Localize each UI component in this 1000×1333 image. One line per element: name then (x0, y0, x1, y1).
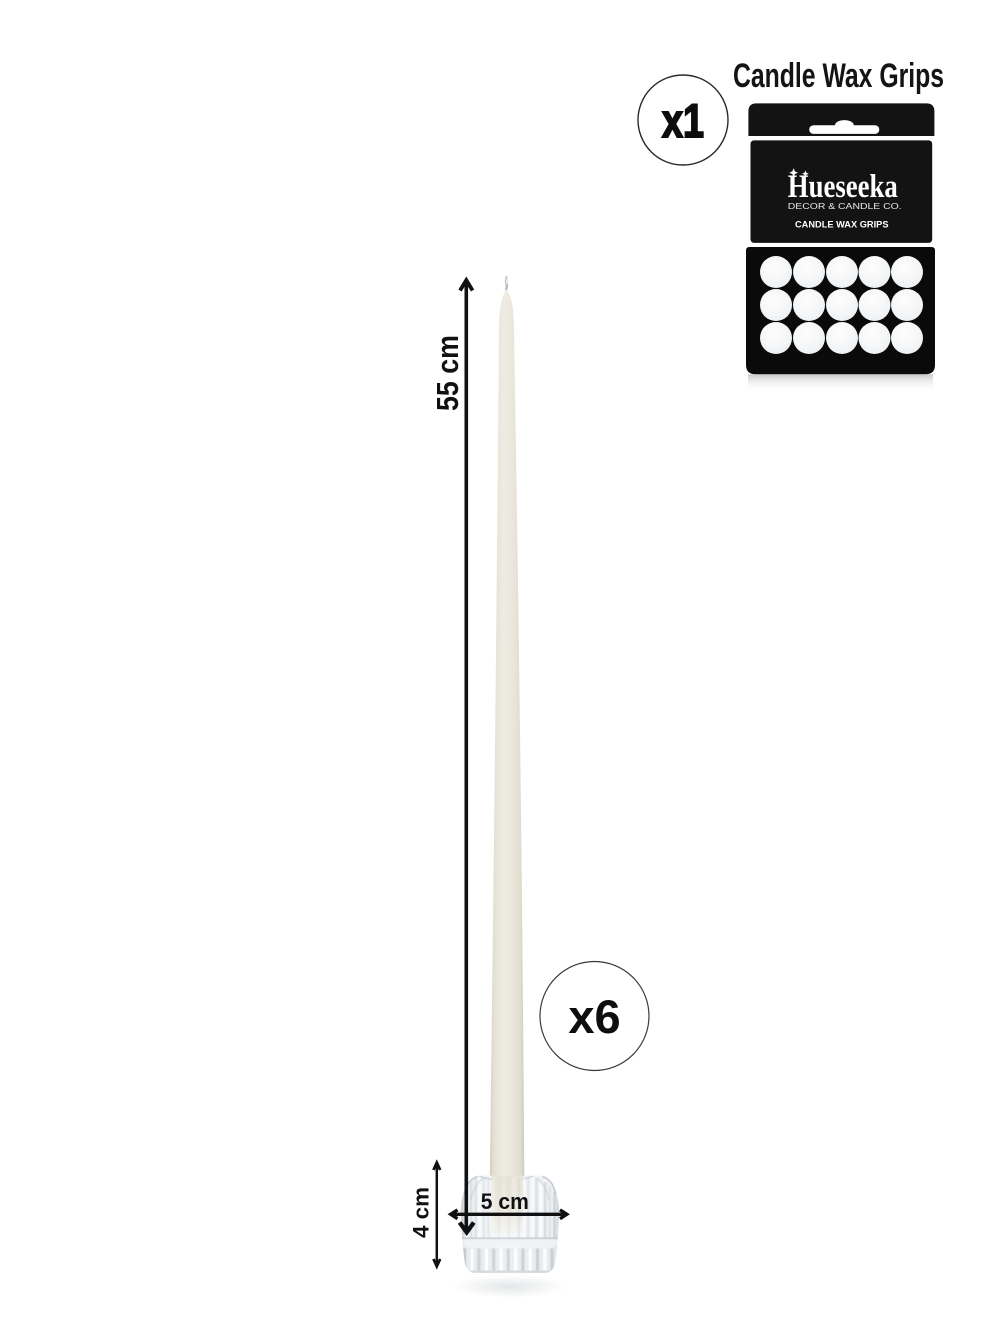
svg-text:x6: x6 (568, 990, 620, 1043)
svg-text:55 cm: 55 cm (430, 335, 465, 411)
svg-text:4 cm: 4 cm (409, 1187, 434, 1238)
svg-text:x1: x1 (662, 94, 704, 147)
svg-text:Hueseeka: Hueseeka (788, 169, 898, 205)
svg-text:Candle Wax Grips: Candle Wax Grips (733, 57, 944, 95)
svg-text:DECOR & CANDLE CO.: DECOR & CANDLE CO. (788, 201, 902, 211)
svg-text:5 cm: 5 cm (481, 1189, 529, 1214)
svg-text:CANDLE WAX GRIPS: CANDLE WAX GRIPS (795, 220, 889, 230)
